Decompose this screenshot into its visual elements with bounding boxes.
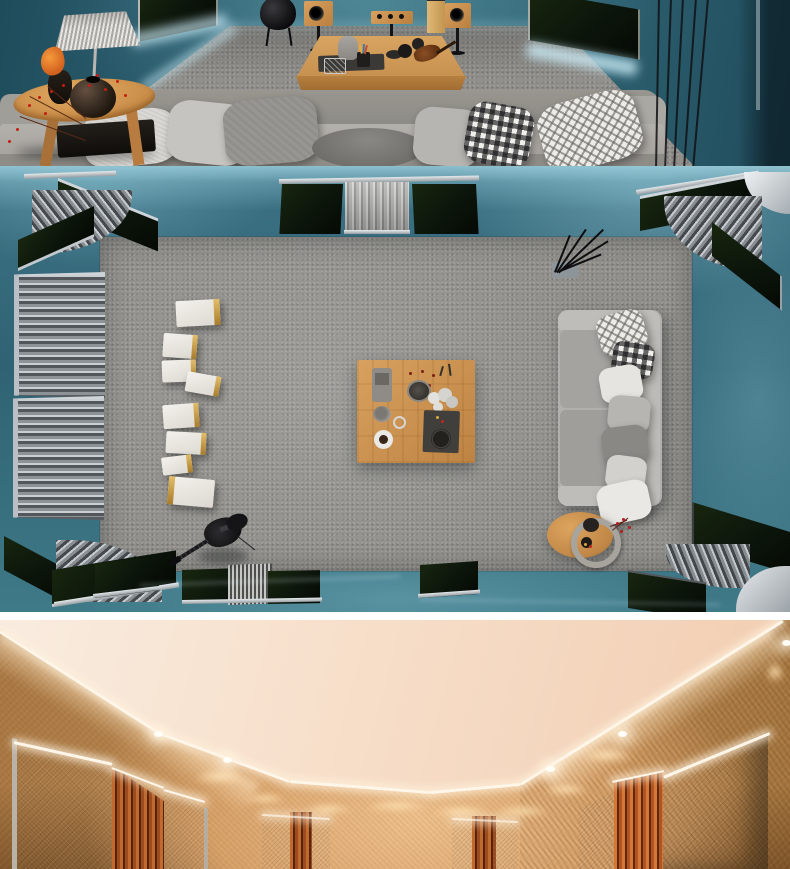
slat-diffuser-panel: [14, 272, 105, 398]
berry: [38, 96, 41, 99]
round-cushion-dark: [312, 128, 424, 166]
section-home-theater: [0, 620, 790, 869]
string-curtain-strand: [673, 0, 684, 166]
section-living-room-perspective: [0, 0, 790, 166]
decor-sphere: [583, 518, 599, 532]
wire-basket: [324, 58, 346, 74]
berry: [628, 526, 631, 529]
speaker-gold-baffle: [167, 476, 175, 504]
fabric-absorber-panel: [262, 816, 292, 869]
curtain-diffuser: [345, 182, 409, 233]
center-speaker-driver: [388, 14, 393, 19]
wood-slat-diffuser: [290, 812, 312, 869]
berry: [622, 518, 625, 521]
speaker-gold-baffle: [213, 299, 220, 325]
berry: [44, 112, 47, 115]
berry: [16, 128, 19, 131]
berry: [8, 140, 11, 143]
berry: [432, 374, 435, 377]
center-speaker-stand: [390, 22, 393, 38]
table-device-screen: [375, 373, 389, 385]
dark-plate: [431, 429, 451, 449]
recessed-downlight: [154, 731, 163, 737]
center-speaker-driver: [399, 14, 404, 19]
smart-speaker: [338, 36, 358, 60]
slat-diffuser-panel: [13, 396, 104, 520]
berry: [50, 90, 53, 93]
berry: [409, 372, 412, 375]
curtain-silver-lip: [344, 230, 410, 234]
berry: [88, 84, 91, 87]
small-ring: [393, 416, 406, 429]
gingham-pillow: [461, 99, 537, 166]
berry: [96, 74, 99, 77]
berry: [104, 88, 107, 91]
absorber-panel: [412, 184, 479, 234]
tower-speaker: [427, 0, 445, 33]
berry: [124, 94, 127, 97]
berry: [421, 370, 424, 373]
fabric-absorber-panel: [494, 820, 518, 869]
speaker-cone: [450, 8, 464, 22]
flower-bloom: [446, 396, 458, 408]
table-accent: [584, 543, 587, 546]
render-collage: [0, 0, 790, 869]
fabric-absorber-panel: [452, 820, 474, 869]
coffee-surface: [379, 435, 388, 444]
section-top-down-plan: [0, 166, 790, 612]
recessed-downlight: [546, 766, 555, 772]
speaker-cabinet: [162, 333, 198, 359]
center-speaker-driver: [377, 14, 382, 19]
gray-bowl: [373, 406, 391, 422]
speaker-cone: [309, 6, 324, 21]
recessed-downlight: [618, 731, 627, 737]
vase-mouth: [86, 76, 100, 83]
tray-accent: [441, 420, 444, 423]
berry: [116, 80, 119, 83]
fabric-absorber-panel: [310, 816, 330, 869]
wall-corner-shadow: [738, 0, 790, 166]
table-accent: [589, 545, 592, 548]
berry: [28, 104, 31, 107]
guitar-shadow: [198, 548, 248, 564]
wall-corner-highlight: [756, 0, 760, 110]
recessed-downlight: [223, 757, 232, 763]
speaker-cabinet: [161, 454, 193, 476]
speaker-stand-right: [456, 27, 459, 53]
speaker-cabinet: [175, 299, 220, 327]
recessed-downlight: [782, 640, 790, 646]
berry: [620, 530, 623, 533]
lamp-shade: [52, 8, 141, 54]
tray-accent: [436, 416, 439, 419]
speaker-cabinet: [162, 403, 200, 429]
fabric-absorber-panel: [12, 738, 117, 869]
wood-slat-diffuser: [614, 770, 663, 869]
wood-slat-diffuser: [472, 816, 496, 869]
speaker-cabinet: [165, 431, 206, 455]
decor-sphere: [398, 44, 412, 58]
speaker-cabinet: [167, 476, 215, 508]
pencil-cup: [357, 52, 370, 67]
throw-pillow-gray: [221, 94, 320, 166]
hanging-egg-chair: [260, 0, 296, 30]
absorber-panel: [279, 184, 343, 234]
berry: [616, 522, 619, 525]
berry: [62, 84, 65, 87]
